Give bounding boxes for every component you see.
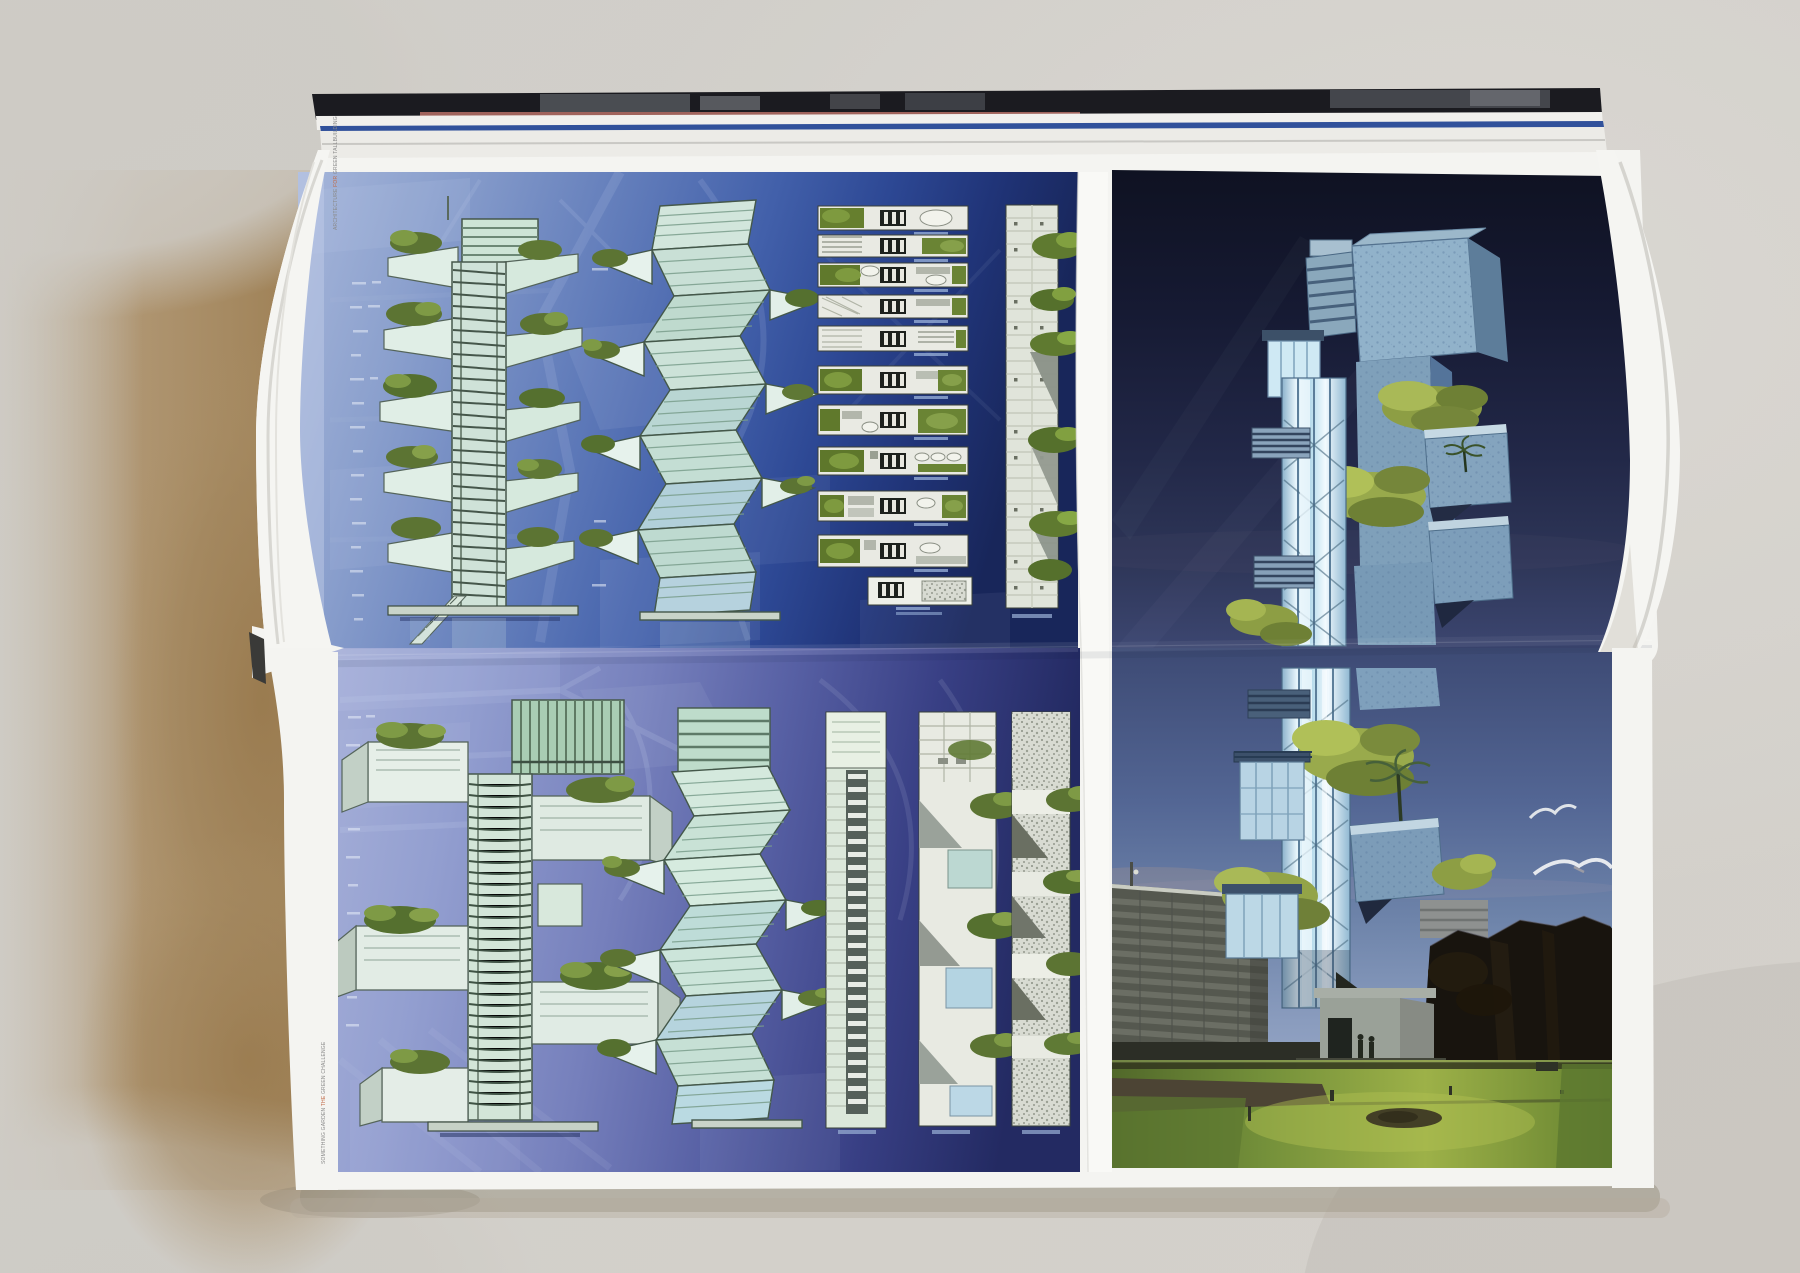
svg-text:SOMETHING GARDEN THE GREEN CHA: SOMETHING GARDEN THE GREEN CHALLENGE [321, 1041, 327, 1164]
svg-text:ARCHITECTURE FOR GREEN TALLBUI: ARCHITECTURE FOR GREEN TALLBUILDING [333, 116, 339, 230]
